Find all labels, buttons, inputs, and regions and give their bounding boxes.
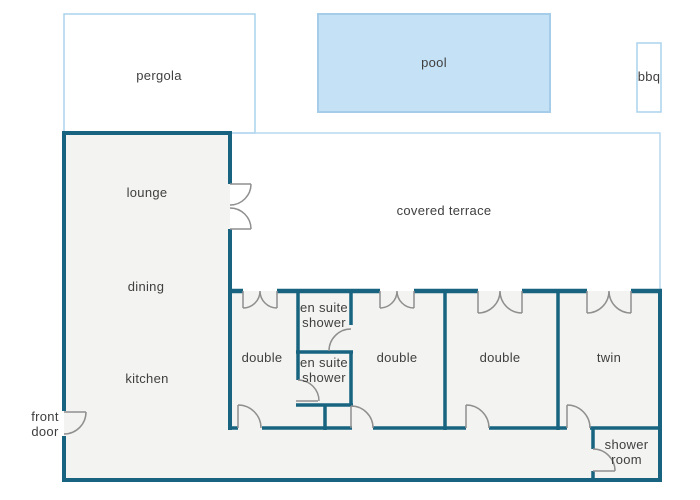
lounge-label: lounge <box>97 186 197 201</box>
bedroom3-label: double <box>460 351 540 366</box>
kitchen-label: kitchen <box>97 372 197 387</box>
ensuite-bottom-label: en suite shower <box>293 356 355 385</box>
bbq-label: bbq <box>629 70 669 85</box>
twin-label: twin <box>569 351 649 366</box>
shower-room-label: shower room <box>600 438 653 467</box>
lounge-terrace-french-door <box>230 184 251 229</box>
pool-label: pool <box>384 56 484 71</box>
bedroom1-label: double <box>222 351 302 366</box>
ensuite-top-label: en suite shower <box>293 301 355 330</box>
front-door-label: front door <box>23 410 67 439</box>
dining-label: dining <box>96 280 196 295</box>
covered-terrace-label: covered terrace <box>374 204 514 219</box>
floor-plan-drawing <box>0 0 700 500</box>
floor-plan: pergola pool bbq lounge dining kitchen c… <box>0 0 700 500</box>
pergola-label: pergola <box>109 69 209 84</box>
bedroom2-label: double <box>357 351 437 366</box>
